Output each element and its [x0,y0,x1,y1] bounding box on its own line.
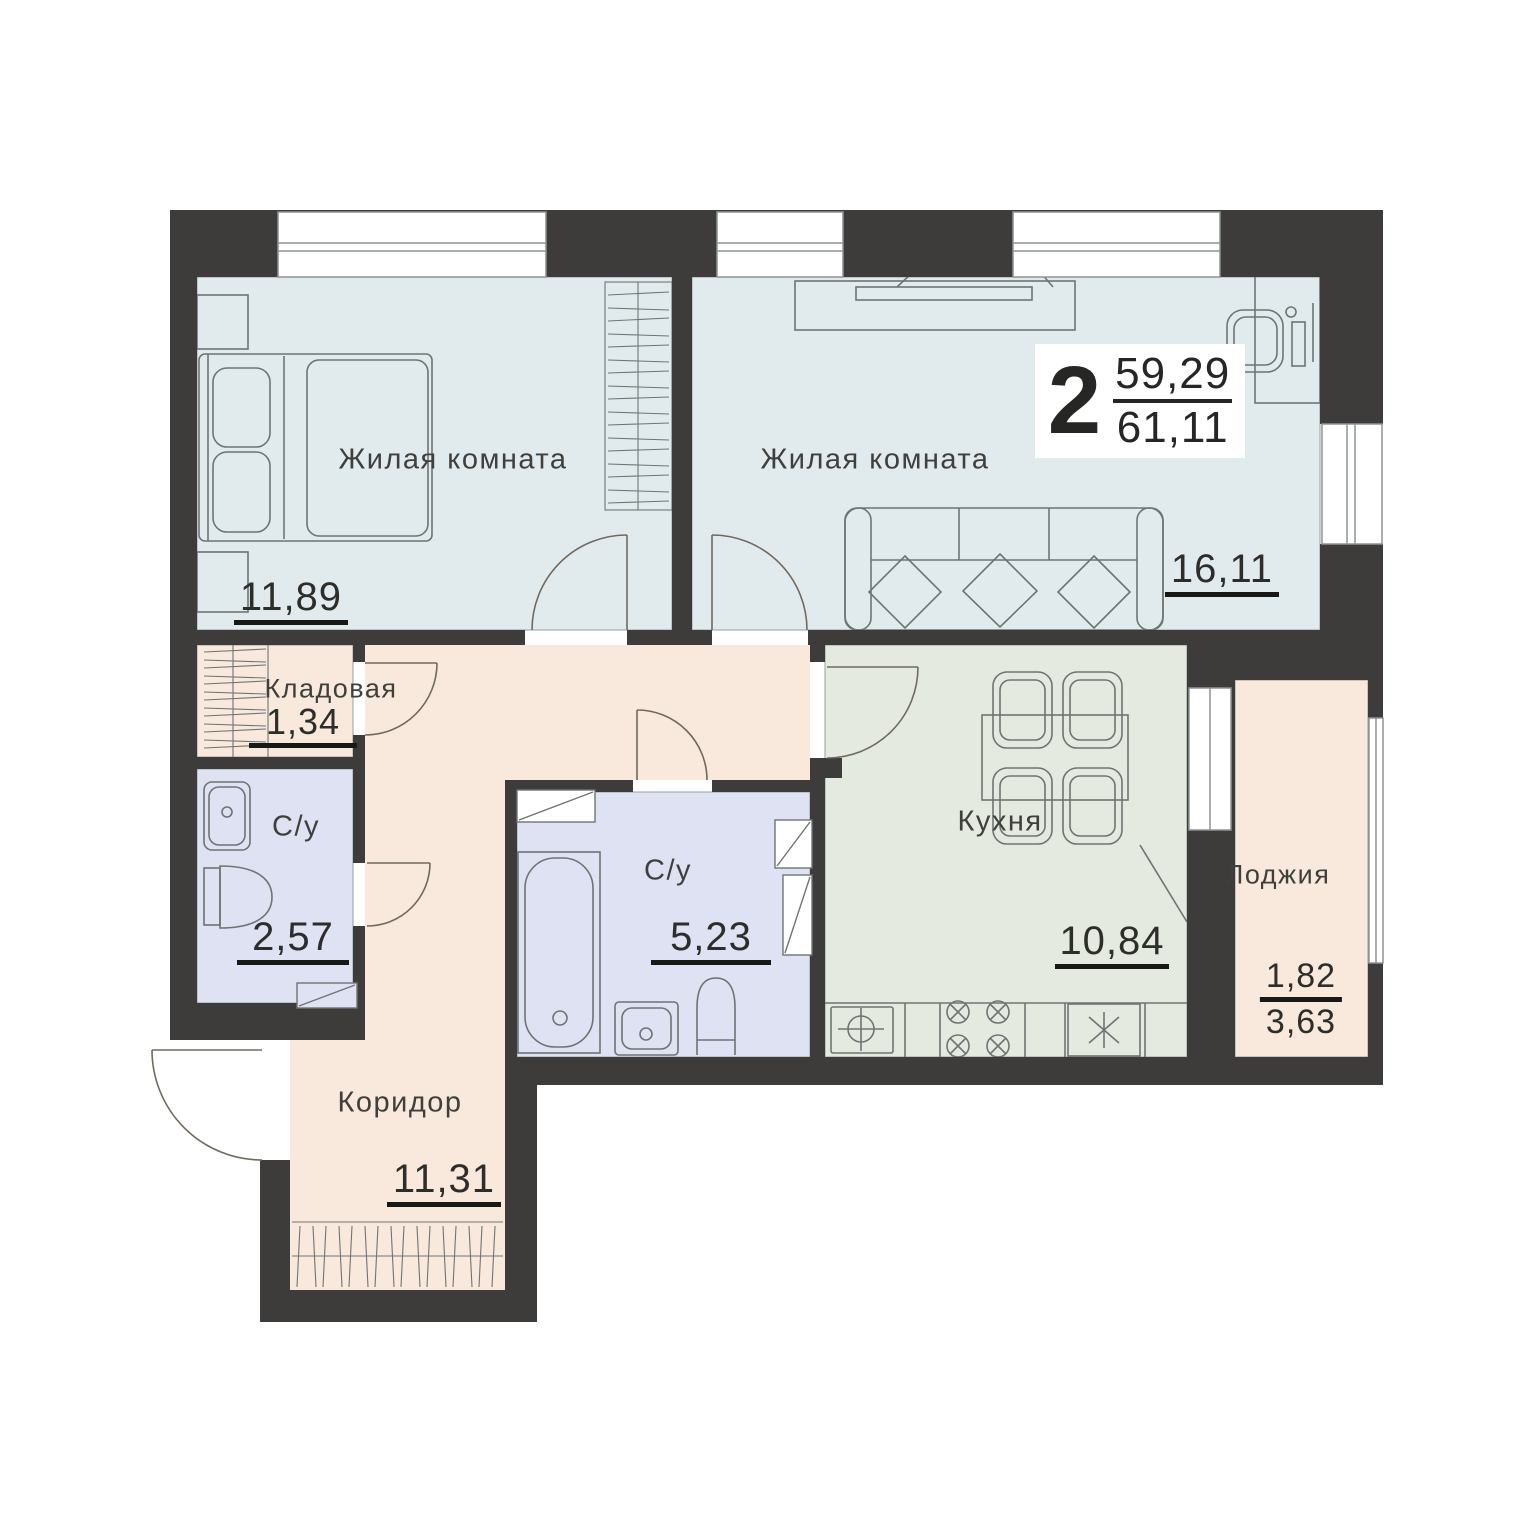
window [1322,424,1382,544]
area-fraction: 59,29 61,11 [1113,352,1232,450]
bedroom-area: 11,89 [234,576,348,625]
corridor-area: 11,31 [387,1158,501,1207]
window [278,212,546,277]
vent-shaft [775,820,812,868]
floor-plan: Жилая комната 11,89 Жилая комната 16,11 … [0,0,1535,1535]
vent-shaft [297,983,357,1008]
corridor-label: Коридор [337,1087,462,1120]
window-loggia [1369,718,1383,963]
bathroom-main-area: 5,23 [651,916,771,965]
kitchen-area: 10,84 [1055,920,1169,969]
storage-label: Кладовая [265,674,398,705]
kitchen-floor [825,645,1187,1057]
living-room-area: 16,11 [1165,548,1279,597]
loggia-area: 1,82 3,63 [1260,958,1342,1042]
rooms-count: 2 [1048,353,1101,449]
kitchen-label: Кухня [957,806,1042,839]
living-area-value: 59,29 [1113,352,1232,403]
bathroom-small-area: 2,57 [237,916,349,965]
window [1013,212,1220,277]
loggia-label: Лоджия [1226,860,1331,891]
door-entrance [152,1050,262,1160]
apartment-info-badge: 2 59,29 61,11 [1035,344,1245,458]
window [717,212,843,277]
storage-area: 1,34 [249,703,357,748]
living-room-label: Жилая комната [761,444,990,477]
bathroom-main-label: С/у [644,855,692,888]
floor-plan-drawing [0,0,1535,1535]
bathroom-small-label: С/у [272,811,320,844]
total-area-value: 61,11 [1117,403,1229,450]
bedroom-label: Жилая комната [339,444,568,477]
vent-shaft [783,875,812,955]
corridor-floor-top [365,645,810,780]
window-kitchen-loggia [1189,688,1231,830]
vent-shaft [517,790,595,822]
